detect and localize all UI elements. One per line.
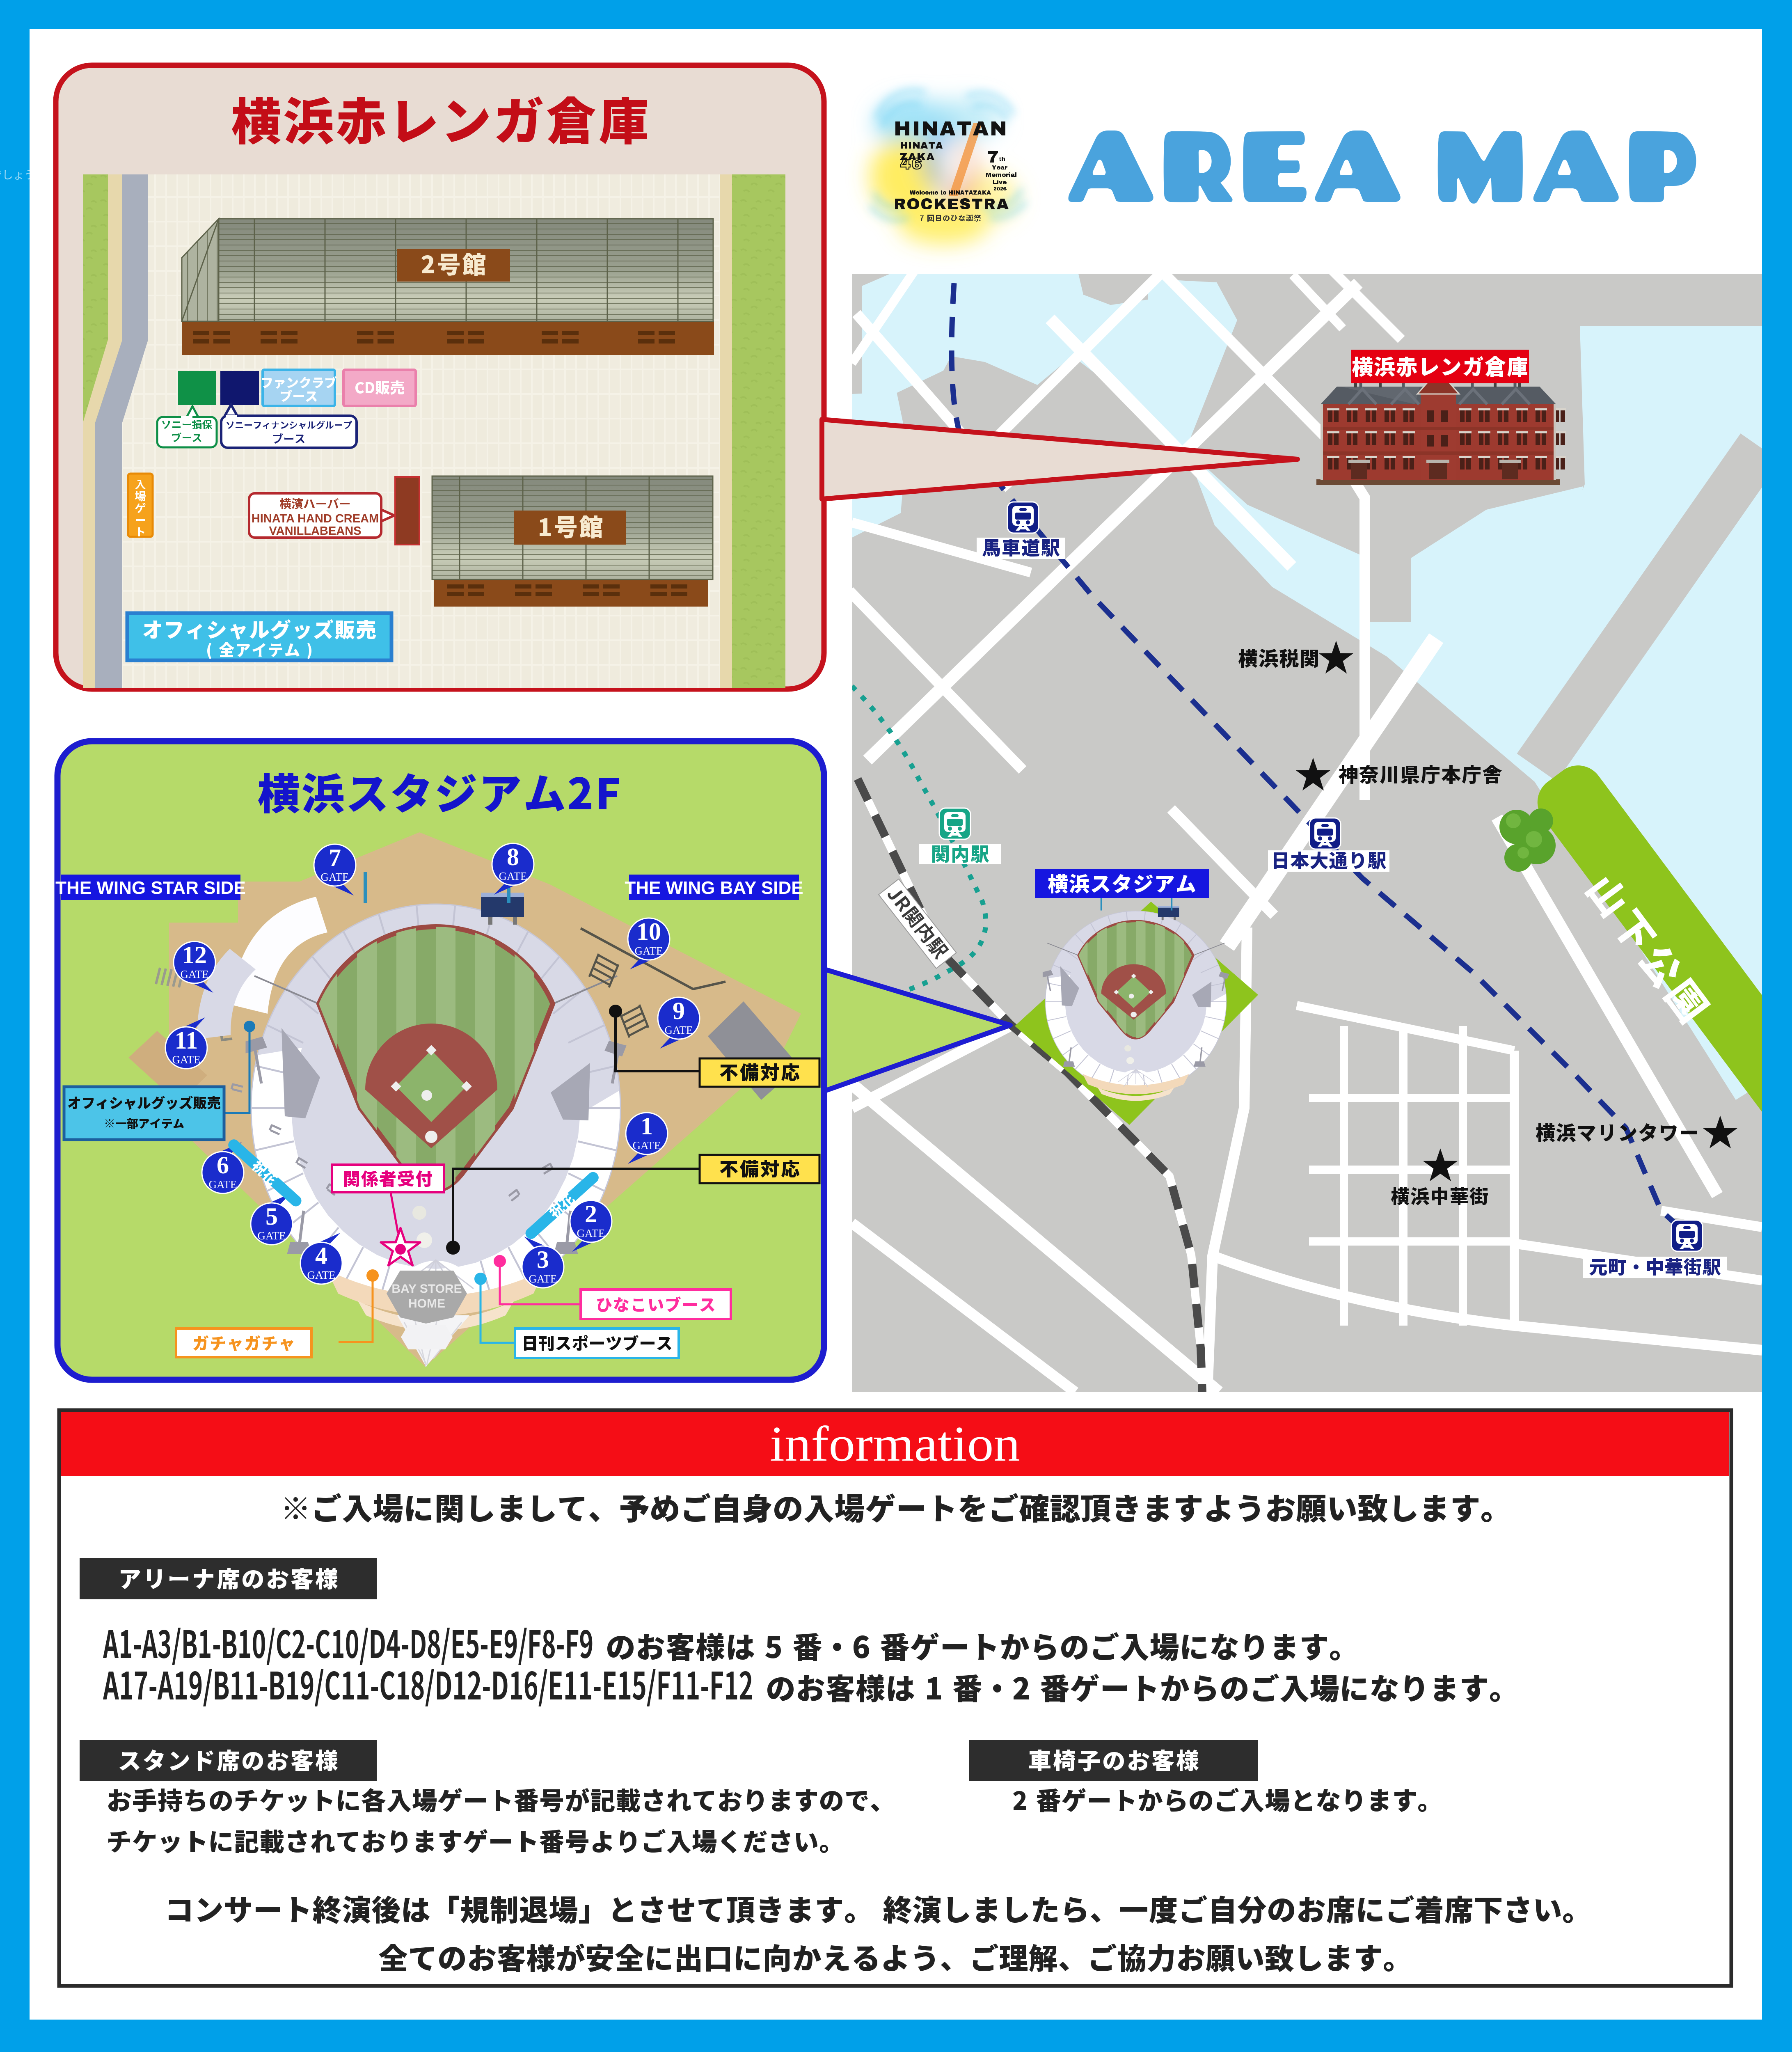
- svg-text:GATE: GATE: [665, 1024, 693, 1036]
- svg-text:GATE: GATE: [577, 1227, 605, 1239]
- svg-text:7: 7: [329, 844, 341, 871]
- svg-text:GATE: GATE: [321, 871, 349, 883]
- svg-text:HINATA HAND CREAM: HINATA HAND CREAM: [252, 512, 379, 525]
- svg-text:GATE: GATE: [258, 1230, 286, 1242]
- svg-text:3: 3: [537, 1246, 549, 1273]
- svg-text:THE WING BAY SIDE: THE WING BAY SIDE: [625, 878, 803, 898]
- svg-text:BAY STORE: BAY STORE: [391, 1282, 462, 1296]
- svg-text:4: 4: [315, 1242, 327, 1269]
- svg-text:GATE: GATE: [209, 1178, 237, 1191]
- svg-text:6: 6: [217, 1152, 229, 1179]
- svg-text:9: 9: [673, 997, 685, 1024]
- svg-text:11: 11: [175, 1027, 198, 1054]
- svg-text:GATE: GATE: [633, 1139, 661, 1152]
- svg-text:GATE: GATE: [529, 1273, 557, 1285]
- svg-text:5: 5: [265, 1203, 278, 1230]
- svg-text:10: 10: [636, 918, 661, 945]
- svg-text:information: information: [770, 1416, 1020, 1472]
- svg-text:THE WING STAR SIDE: THE WING STAR SIDE: [55, 878, 246, 898]
- svg-text:GATE: GATE: [181, 968, 209, 980]
- svg-text:8: 8: [507, 843, 519, 870]
- svg-text:GATE: GATE: [307, 1269, 336, 1281]
- svg-text:GATE: GATE: [172, 1053, 201, 1066]
- svg-text:でしょう: でしょう: [0, 169, 35, 181]
- svg-text:12: 12: [182, 941, 207, 969]
- svg-text:1: 1: [641, 1113, 653, 1140]
- svg-text:2: 2: [585, 1200, 597, 1228]
- svg-text:HOME: HOME: [408, 1297, 445, 1310]
- svg-text:VANILLABEANS: VANILLABEANS: [269, 524, 361, 538]
- svg-text:GATE: GATE: [499, 870, 527, 882]
- svg-text:GATE: GATE: [635, 945, 663, 957]
